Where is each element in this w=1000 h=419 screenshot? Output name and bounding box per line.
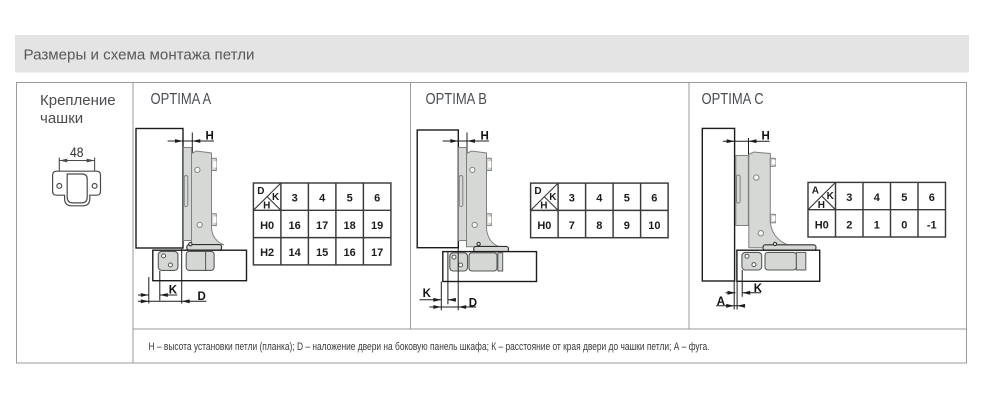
svg-text:H: H bbox=[263, 201, 270, 212]
svg-text:K: K bbox=[549, 192, 557, 203]
svg-text:H: H bbox=[818, 200, 825, 211]
svg-text:6: 6 bbox=[374, 192, 380, 204]
svg-text:H: H bbox=[540, 201, 547, 212]
svg-text:3: 3 bbox=[569, 193, 575, 205]
svg-text:-1: -1 bbox=[927, 219, 937, 231]
svg-text:D: D bbox=[198, 291, 206, 303]
svg-text:Размеры и схема монтажа петли: Размеры и схема монтажа петли bbox=[24, 47, 255, 64]
svg-text:H: H bbox=[481, 131, 489, 143]
svg-text:3: 3 bbox=[292, 192, 298, 204]
svg-text:9: 9 bbox=[624, 220, 630, 232]
svg-text:14: 14 bbox=[289, 247, 302, 259]
svg-text:0: 0 bbox=[901, 219, 907, 231]
svg-text:3: 3 bbox=[846, 192, 852, 204]
svg-text:H: H bbox=[762, 130, 770, 142]
svg-text:A: A bbox=[812, 185, 819, 196]
svg-text:16: 16 bbox=[344, 247, 356, 259]
svg-text:6: 6 bbox=[929, 192, 935, 204]
svg-text:15: 15 bbox=[316, 247, 328, 259]
svg-text:K: K bbox=[169, 284, 178, 296]
svg-text:4: 4 bbox=[596, 193, 603, 205]
svg-text:D: D bbox=[257, 186, 264, 197]
svg-text:4: 4 bbox=[874, 192, 881, 204]
svg-text:4: 4 bbox=[319, 192, 326, 204]
svg-text:5: 5 bbox=[624, 193, 630, 205]
svg-text:2: 2 bbox=[846, 219, 852, 231]
svg-text:5: 5 bbox=[901, 192, 907, 204]
svg-text:чашки: чашки bbox=[40, 110, 83, 127]
svg-text:H0: H0 bbox=[537, 220, 551, 232]
svg-text:A: A bbox=[717, 296, 725, 308]
svg-text:K: K bbox=[754, 283, 763, 295]
svg-text:5: 5 bbox=[347, 192, 353, 204]
svg-text:OPTIMA C: OPTIMA C bbox=[702, 91, 764, 108]
svg-text:8: 8 bbox=[596, 220, 602, 232]
svg-text:1: 1 bbox=[874, 219, 880, 231]
svg-text:K: K bbox=[423, 288, 432, 300]
svg-text:D: D bbox=[534, 186, 541, 197]
svg-text:17: 17 bbox=[371, 247, 383, 259]
svg-text:17: 17 bbox=[316, 220, 328, 232]
svg-text:19: 19 bbox=[371, 220, 383, 232]
svg-text:H0: H0 bbox=[260, 220, 274, 232]
svg-text:6: 6 bbox=[651, 193, 657, 205]
svg-text:H2: H2 bbox=[260, 247, 274, 259]
svg-text:10: 10 bbox=[648, 220, 660, 232]
svg-text:Крепление: Крепление bbox=[40, 92, 116, 109]
svg-text:H0: H0 bbox=[815, 219, 829, 231]
svg-text:OPTIMA B: OPTIMA B bbox=[426, 91, 487, 108]
svg-text:OPTIMA A: OPTIMA A bbox=[151, 91, 212, 108]
svg-text:K: K bbox=[827, 191, 835, 202]
svg-text:18: 18 bbox=[344, 220, 356, 232]
svg-text:7: 7 bbox=[569, 220, 575, 232]
svg-text:H: H bbox=[206, 131, 214, 143]
svg-text:16: 16 bbox=[289, 220, 301, 232]
svg-text:D: D bbox=[469, 297, 477, 309]
svg-text:Н – высота установки петли (пл: Н – высота установки петли (планка); D –… bbox=[149, 341, 710, 353]
svg-text:K: K bbox=[272, 192, 280, 203]
svg-text:48: 48 bbox=[70, 144, 84, 160]
